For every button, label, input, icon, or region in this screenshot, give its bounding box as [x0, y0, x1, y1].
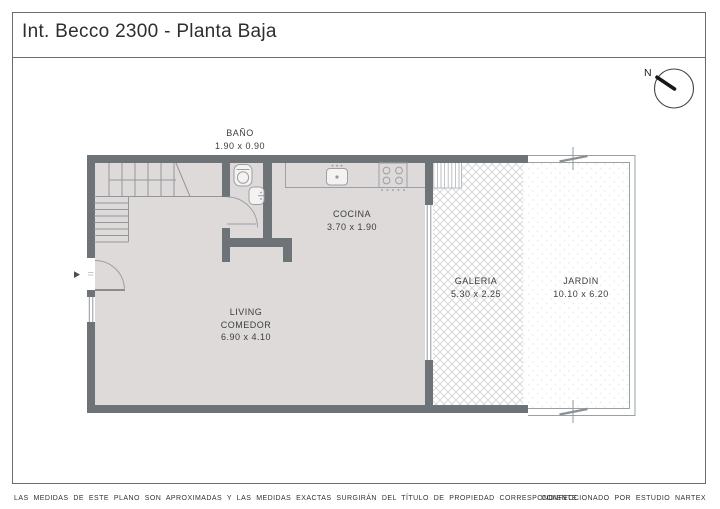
floor-plan-drawing — [0, 0, 720, 509]
jardin-dims: 10.10 x 6.20 — [553, 288, 609, 301]
wall-left-mid — [87, 290, 95, 297]
wall-stub — [283, 247, 292, 262]
disclaimer-text: LAS MEDIDAS DE ESTE PLANO SON APROXIMADA… — [14, 495, 579, 502]
bano-dims: 1.90 x 0.90 — [215, 140, 265, 153]
wall-top — [87, 155, 528, 163]
living-dims: 6.90 x 4.10 — [221, 331, 272, 344]
wall-bath-left — [222, 163, 230, 197]
label-living: LIVING COMEDOR 6.90 x 4.10 — [221, 306, 272, 344]
wall-right-lower — [425, 360, 433, 413]
wall-bath-bottom — [222, 238, 292, 247]
credit-text: CONFECCIONADO POR ESTUDIO NARTEX — [541, 495, 706, 502]
galeria-steps-hatch — [433, 163, 462, 188]
wall-bottom — [87, 405, 528, 413]
label-bano: BAÑO 1.90 x 0.90 — [215, 127, 265, 152]
floor-plan-page: Int. Becco 2300 - Planta Baja — [0, 0, 720, 509]
wall-right-upper — [425, 155, 433, 205]
sink-icon — [249, 187, 264, 205]
cocina-name: COCINA — [327, 208, 377, 221]
jardin-name: JARDIN — [553, 275, 609, 288]
cocina-dims: 3.70 x 1.90 — [327, 221, 377, 234]
window-left — [87, 297, 95, 322]
galeria-dims: 5.30 x 2.25 — [451, 288, 501, 301]
toilet-icon — [234, 165, 252, 187]
label-jardin: JARDIN 10.10 x 6.20 — [553, 275, 609, 300]
compass-north-label: N — [644, 67, 652, 79]
glass-door-right — [425, 205, 433, 360]
wall-left-upper — [87, 155, 95, 258]
living-name-line2: COMEDOR — [221, 319, 272, 332]
living-name-line1: LIVING — [221, 306, 272, 319]
north-compass-icon — [655, 69, 694, 108]
wall-left-lower — [87, 322, 95, 413]
galeria-name: GALERIA — [451, 275, 501, 288]
label-galeria: GALERIA 5.30 x 2.25 — [451, 275, 501, 300]
entrance-arrow-icon — [74, 271, 80, 278]
bano-name: BAÑO — [215, 127, 265, 140]
label-cocina: COCINA 3.70 x 1.90 — [327, 208, 377, 233]
entrance-opening — [87, 258, 95, 290]
